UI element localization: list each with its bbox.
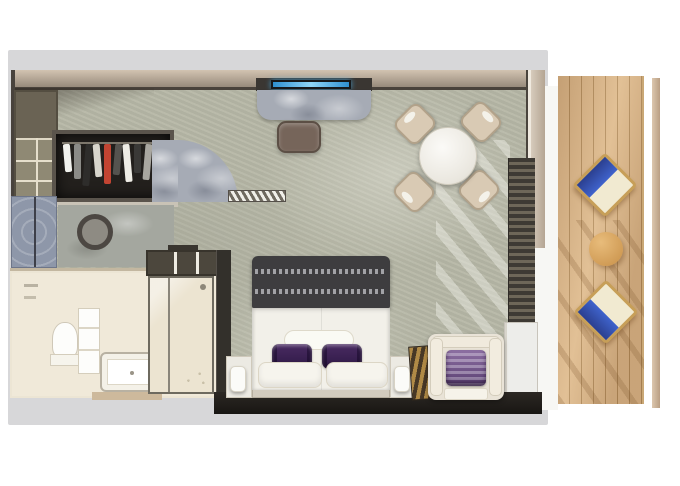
media-console (257, 90, 371, 120)
garment (122, 144, 132, 182)
tiled-floor (11, 196, 57, 268)
toilet (52, 322, 78, 358)
round-dining-table (419, 127, 477, 185)
bed-runner (252, 256, 390, 308)
garment (74, 144, 81, 179)
curtains (508, 158, 535, 328)
table-lamp-left (230, 366, 246, 392)
garment (113, 144, 123, 175)
toilet-tank (50, 354, 80, 366)
garment (82, 144, 93, 186)
balcony-outer-edge (652, 78, 660, 408)
garment (93, 144, 103, 177)
garment (104, 144, 111, 184)
balcony-door-panel (504, 322, 538, 400)
towel-bar (24, 284, 38, 287)
entry-marble-floor (152, 140, 180, 202)
ottoman (277, 121, 321, 153)
towel-bar (24, 296, 36, 299)
table-lamp-right (394, 366, 410, 392)
round-sink (77, 214, 113, 250)
armchair-arm (489, 338, 502, 396)
glass-shower (148, 276, 214, 394)
chair-handle-cutout (400, 190, 415, 205)
tv-glow (273, 82, 349, 87)
shower-glass-panel (168, 278, 170, 392)
chair-handle-cutout (402, 110, 417, 125)
armchair (428, 334, 504, 400)
armchair-blanket (444, 388, 488, 400)
white-pillow (258, 362, 322, 388)
tub-drain (130, 371, 134, 375)
suite-floor-plan-rendering (0, 0, 680, 486)
shower-wall (146, 250, 218, 276)
garment (63, 144, 72, 173)
tv-screen (271, 80, 351, 89)
garment (134, 144, 141, 173)
chair-handle-cutout (480, 109, 495, 124)
entry-door-leaf (228, 190, 286, 202)
balcony-side-table (589, 232, 623, 266)
shower-head (200, 284, 206, 290)
chair-handle-cutout (477, 189, 492, 204)
armchair-purple-cushion (446, 350, 486, 386)
upper-cabinet (16, 92, 56, 140)
bathroom-vanity (78, 308, 100, 374)
white-pillow (326, 362, 388, 388)
armchair-arm (430, 338, 443, 396)
